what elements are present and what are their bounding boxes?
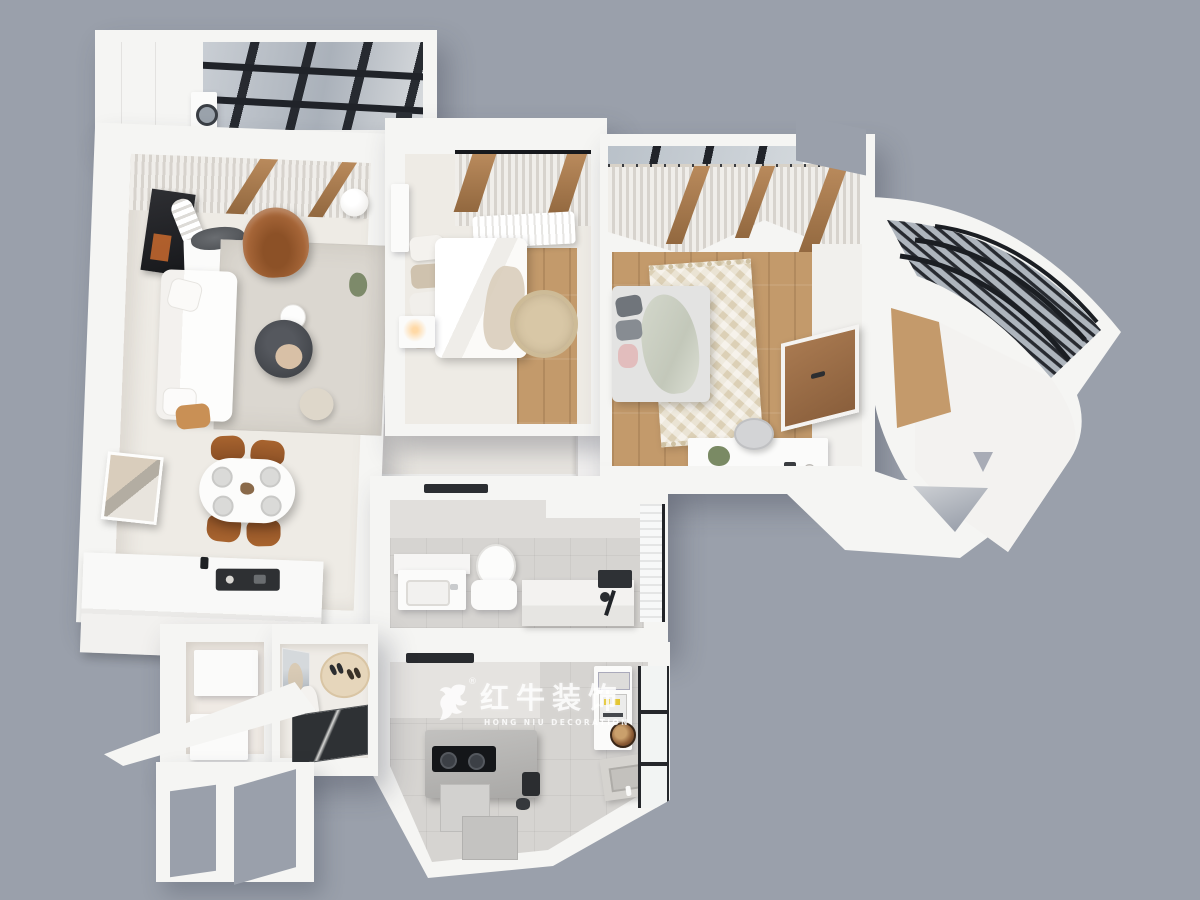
counter-cup	[200, 557, 208, 569]
burner	[440, 752, 457, 769]
pillow-pink	[618, 344, 638, 368]
window-bar	[641, 710, 667, 714]
curved-balcony	[855, 180, 1125, 570]
desk-plant	[708, 446, 730, 466]
bottom-walls	[156, 762, 314, 882]
kitchen-vent	[406, 653, 474, 663]
counter-tray	[216, 569, 280, 591]
tall-cabinet	[391, 184, 409, 252]
kitchen-window	[638, 666, 669, 808]
pillow-dark	[614, 294, 643, 318]
wall-art	[101, 451, 164, 525]
door-handle	[811, 371, 825, 379]
dining-chair	[246, 520, 280, 546]
base-cabinet	[462, 816, 518, 860]
dining-chair	[210, 435, 245, 460]
sofa-pillow-tan	[175, 403, 211, 430]
place-setting	[212, 495, 234, 517]
table-tray	[275, 344, 303, 370]
tray-item	[254, 575, 266, 584]
faucet	[450, 584, 458, 590]
basin	[398, 570, 466, 610]
bathroom-window	[640, 504, 665, 622]
cooktop	[432, 746, 496, 772]
tray-item	[226, 576, 234, 584]
brand-watermark: ® 红牛装饰 HONG NIU DECORATION	[434, 678, 634, 732]
round-jute-rug	[510, 290, 578, 358]
pillow-dark	[615, 319, 643, 342]
sofa	[156, 269, 238, 422]
living-dining-room	[76, 122, 395, 633]
window-mullions	[203, 42, 423, 130]
glass-roof-window	[203, 42, 423, 130]
master-bedroom	[600, 134, 875, 492]
vanity-stool	[734, 418, 774, 450]
basin-inner	[406, 580, 450, 606]
watermark-brand-en: HONG NIU DECORATION	[484, 718, 630, 727]
table-centerpiece	[240, 482, 254, 495]
alcove-cabinet-upper	[194, 650, 258, 696]
duvet	[637, 291, 703, 396]
dining-table	[198, 457, 296, 525]
sofa-pillow	[165, 277, 203, 314]
wall-opening	[234, 769, 296, 885]
master-bed	[612, 286, 710, 402]
balcony-cabinet-seam	[155, 42, 156, 132]
bedroom-second	[385, 118, 607, 436]
place-setting	[259, 466, 281, 488]
burner	[468, 753, 485, 770]
place-setting	[211, 466, 233, 488]
bull-logo-icon	[434, 682, 472, 724]
shower-set	[596, 590, 624, 618]
toilet	[471, 544, 517, 612]
exhaust-vent	[424, 484, 488, 493]
shower-head	[600, 592, 610, 602]
stock-pot	[522, 772, 540, 796]
toilet-tank	[471, 580, 517, 610]
table-lamp-glow	[403, 318, 427, 342]
nightstand	[399, 316, 435, 348]
tv-screen-accent	[150, 233, 172, 261]
balcony-cabinet-seam	[121, 42, 122, 132]
shower-control-panel	[598, 570, 632, 588]
bathroom	[370, 476, 668, 648]
place-setting	[260, 495, 282, 517]
washer-door	[196, 104, 218, 126]
wall-opening	[170, 785, 216, 877]
watermark-brand-cn: 红牛装饰	[480, 684, 624, 713]
window-bar	[641, 762, 667, 766]
registered-mark: ®	[468, 678, 477, 687]
vanity-sink	[394, 554, 470, 610]
kettle	[516, 798, 530, 810]
apartment-3d-floorplan-render: ® 红牛装饰 HONG NIU DECORATION	[0, 0, 1200, 900]
